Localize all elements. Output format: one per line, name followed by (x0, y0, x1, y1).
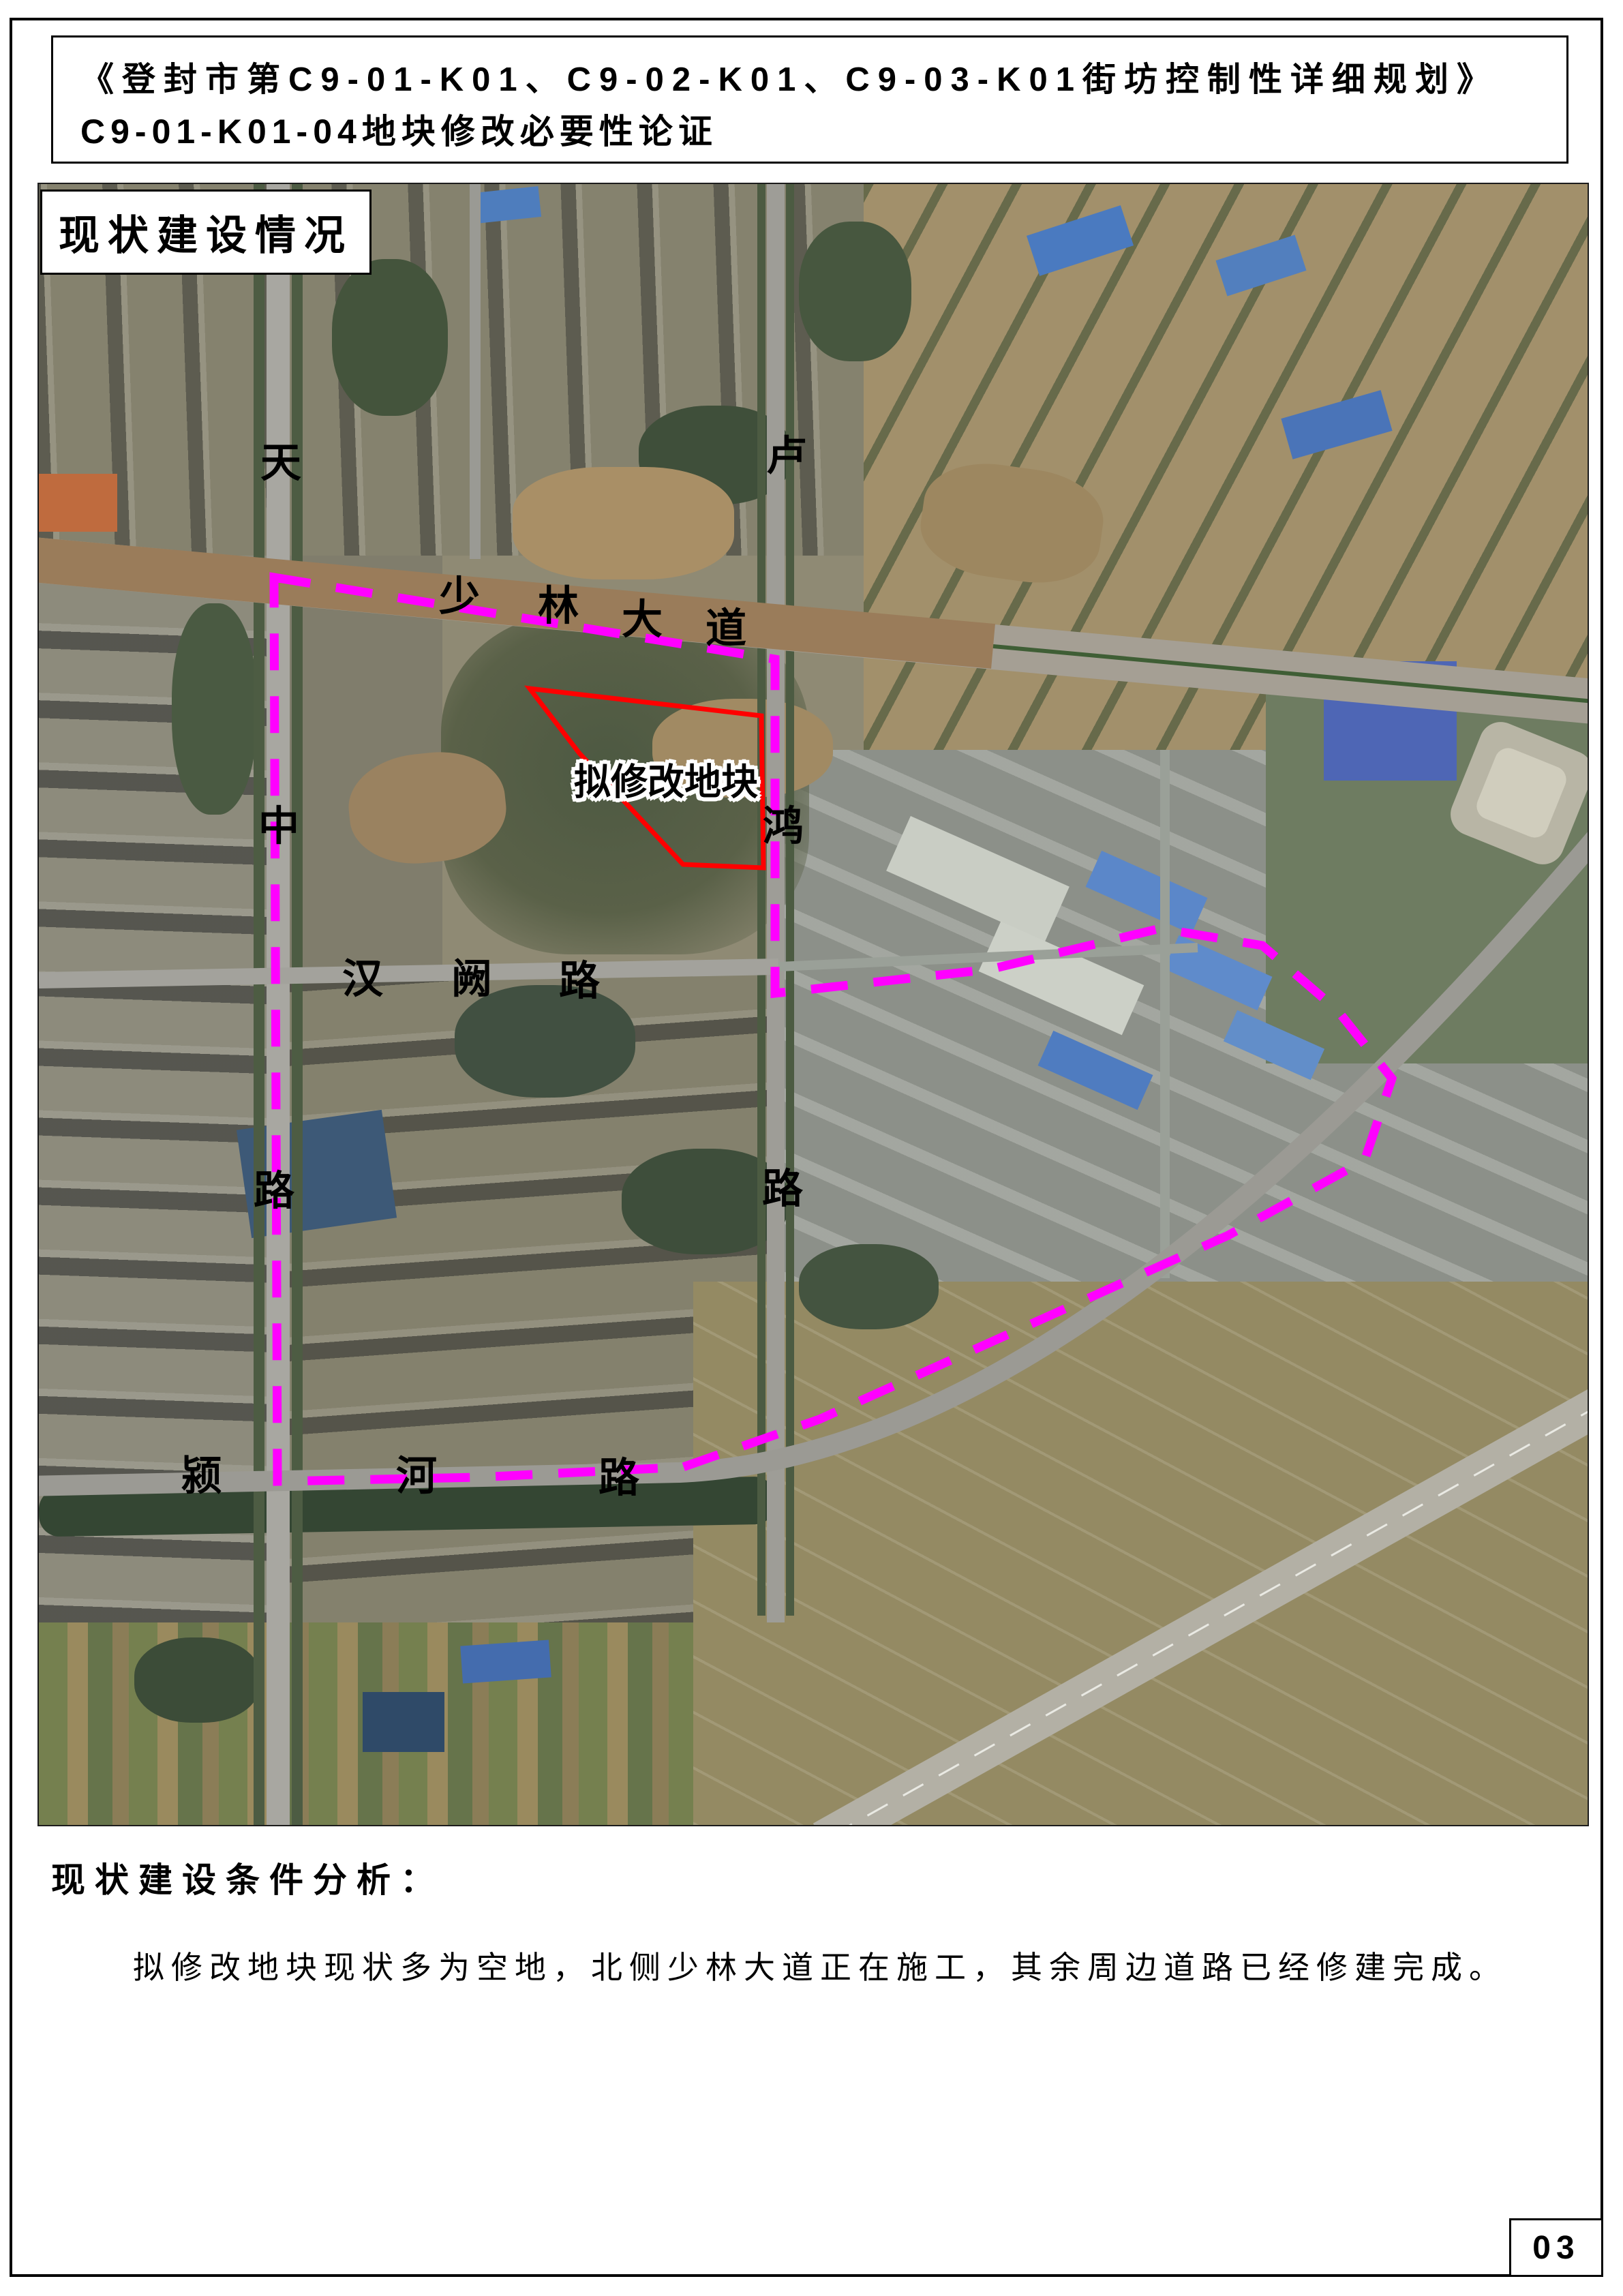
road-name-label: 路 (762, 1156, 803, 1215)
document-title-line1: 《登封市第C9-01-K01、C9-02-K01、C9-03-K01街坊控制性详… (80, 52, 1498, 101)
road-name-label: 颍 (181, 1443, 222, 1502)
road-name-label: 卢 (766, 423, 807, 483)
road-name-label: 天 (260, 430, 301, 489)
road-name-label: 林 (538, 573, 579, 633)
road-name-label: 鸿 (763, 794, 804, 853)
page-number-box: 03 (1509, 2218, 1603, 2277)
road-name-label: 阙 (451, 946, 492, 1006)
map-title-box: 现状建设情况 (40, 190, 371, 275)
road-name-label: 中 (258, 794, 299, 853)
road-name-label: 汉 (342, 946, 383, 1006)
document-title-line2: C9-01-K01-04地块修改必要性论证 (80, 104, 718, 153)
satellite-map: 天卢少林大道中鸿汉阙路路路颍河路 拟修改地块 现状建设情况 (37, 183, 1589, 1826)
road-name-label: 路 (598, 1445, 639, 1505)
header-title-box: 《登封市第C9-01-K01、C9-02-K01、C9-03-K01街坊控制性详… (51, 35, 1568, 164)
road-name-label: 少 (439, 564, 480, 623)
road-name-label: 大 (622, 587, 663, 646)
plot-label: 拟修改地块 (574, 752, 758, 806)
road-name-label: 路 (254, 1158, 294, 1218)
road-name-label: 路 (559, 948, 600, 1008)
analysis-heading: 现状建设条件分析： (51, 1853, 444, 1902)
road-name-label: 河 (396, 1443, 437, 1502)
analysis-body: 拟修改地块现状多为空地，北侧少林大道正在施工，其余周边道路已经修建完成。 (133, 1944, 1585, 1992)
road-name-label: 道 (706, 596, 746, 655)
map-title-label: 现状建设情况 (59, 213, 353, 258)
page-number: 03 (1532, 2229, 1579, 2267)
road-labels-layer: 天卢少林大道中鸿汉阙路路路颍河路 (39, 184, 1588, 1825)
